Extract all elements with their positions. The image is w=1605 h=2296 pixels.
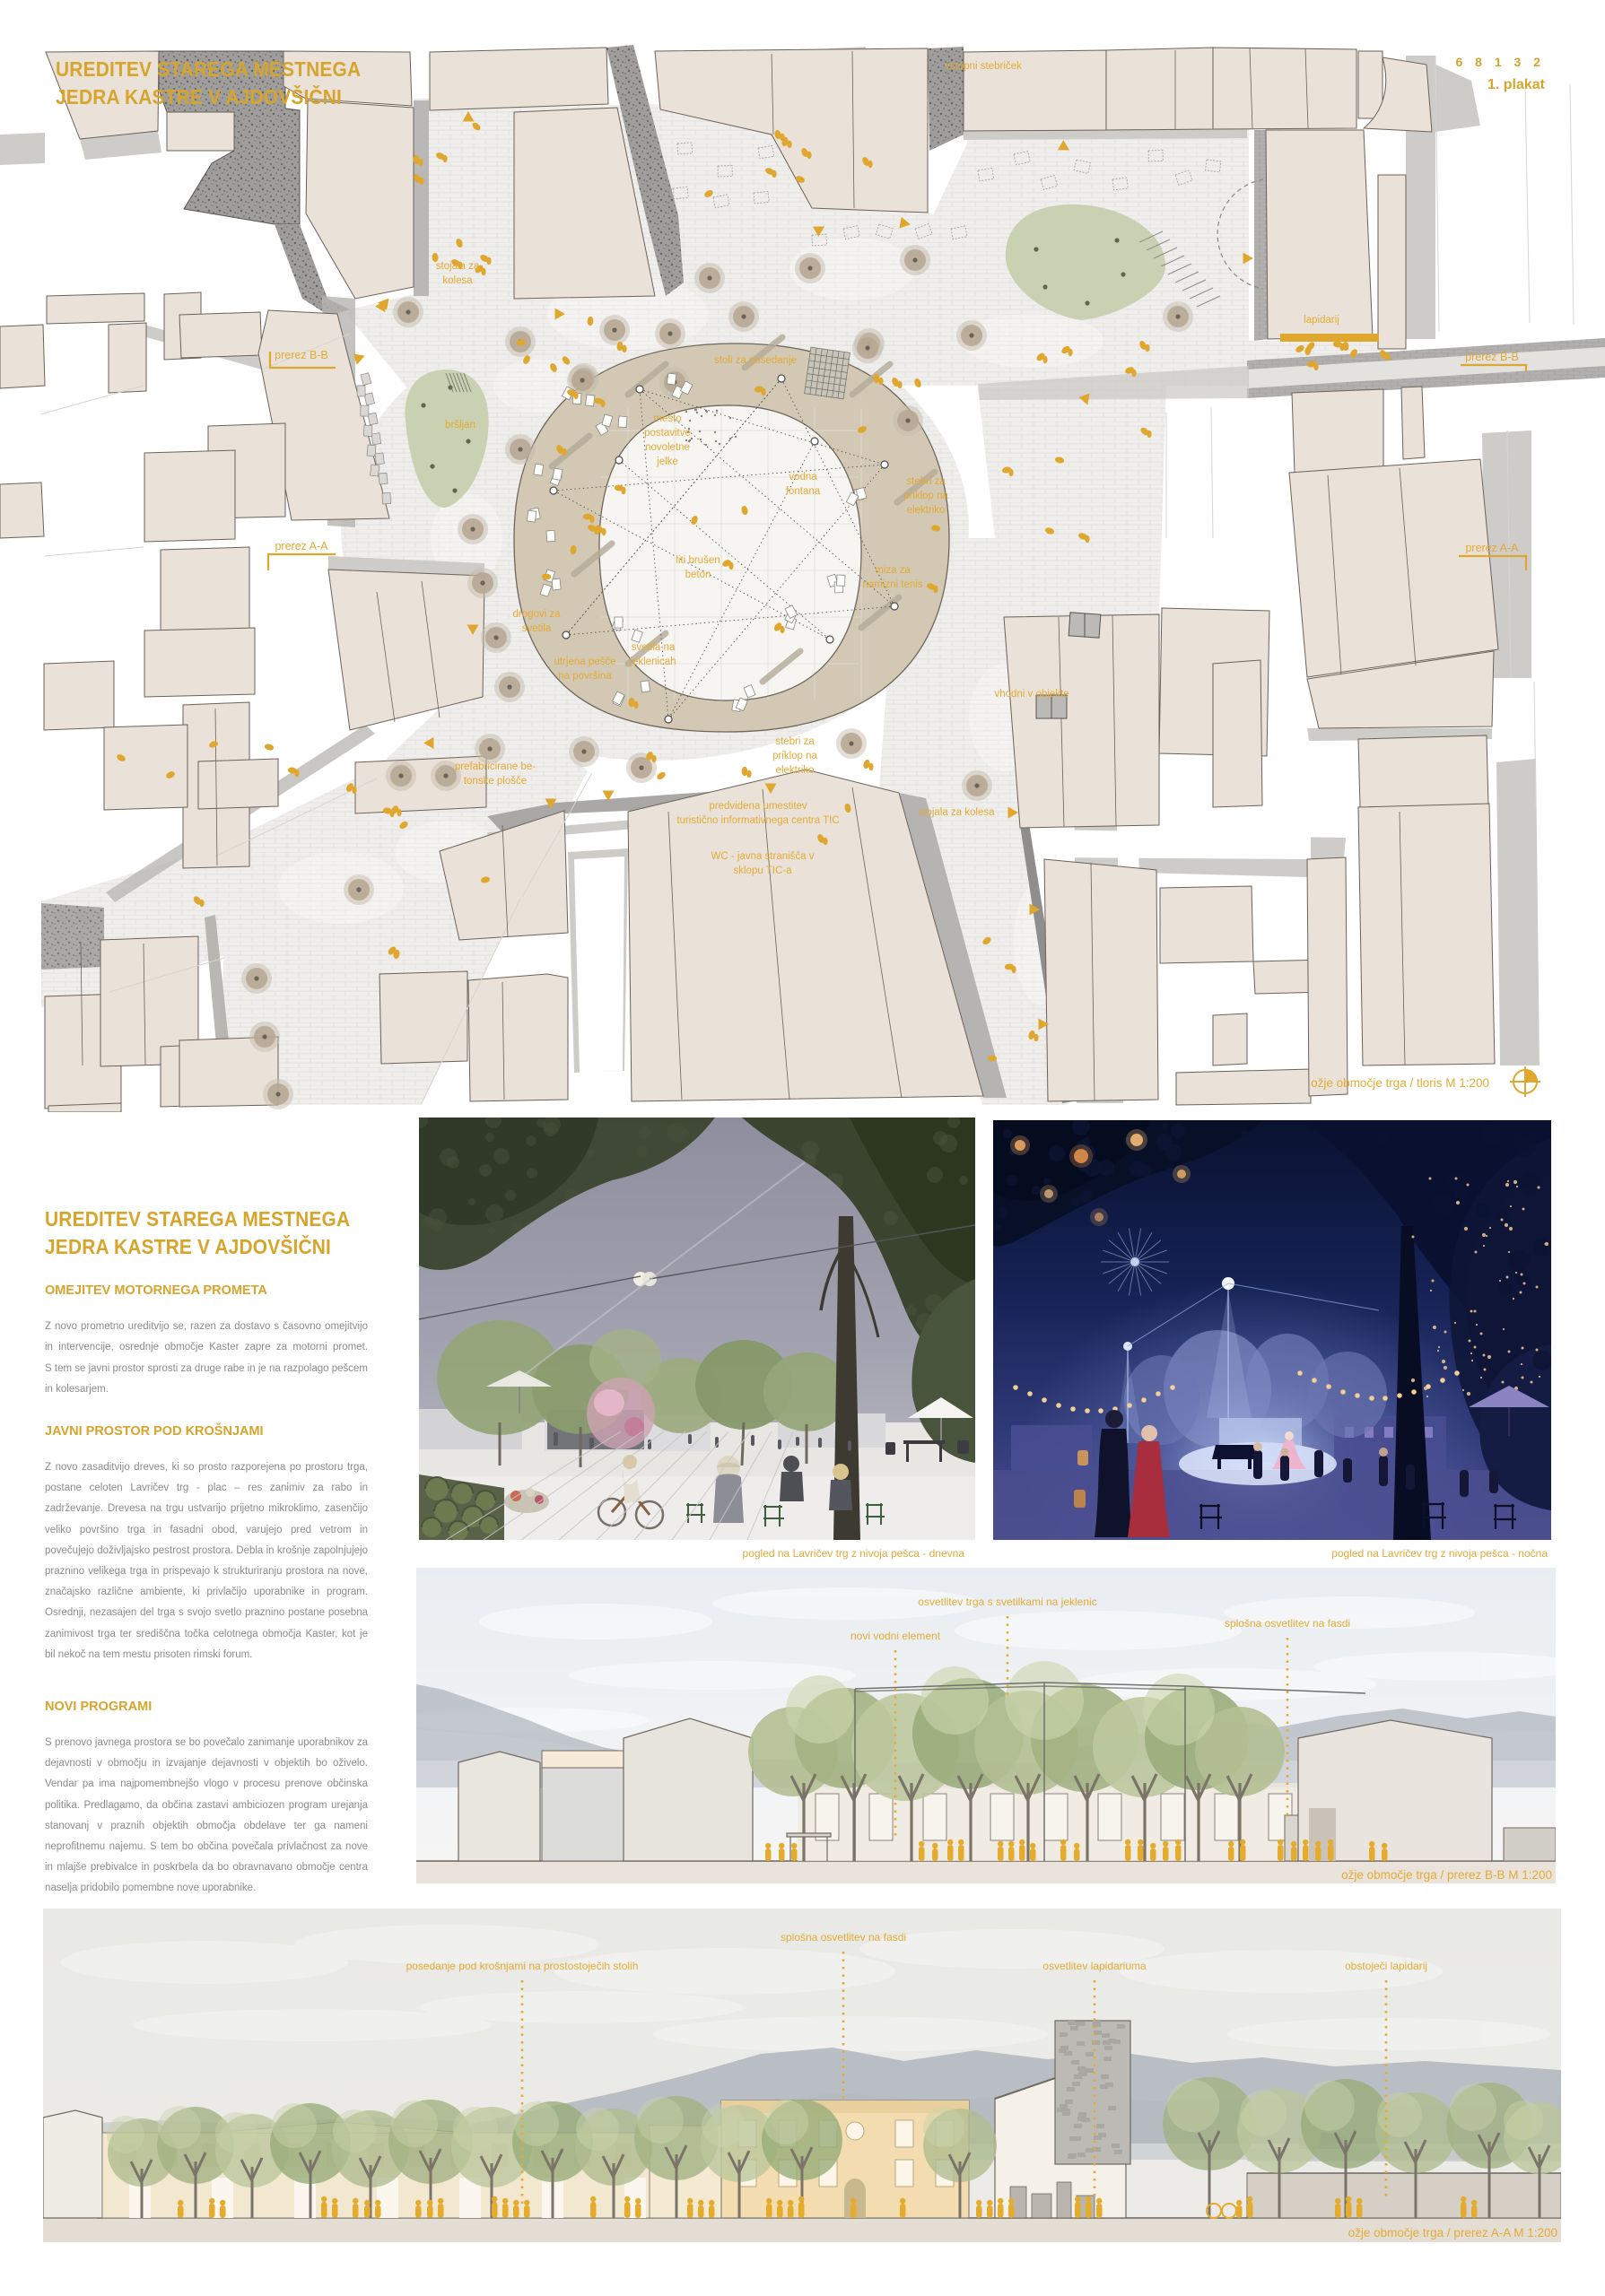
svg-text:jeklenicah: jeklenicah <box>629 657 676 667</box>
svg-text:kolesa: kolesa <box>442 275 473 286</box>
svg-text:elektriko: elektriko <box>776 765 815 776</box>
svg-text:prerez B-B: prerez B-B <box>1465 351 1519 363</box>
svg-text:stebri za: stebri za <box>775 736 815 747</box>
svg-text:obstoječi lapidarij: obstoječi lapidarij <box>1345 1960 1427 1972</box>
svg-text:novi vodni element: novi vodni element <box>850 1630 941 1642</box>
svg-text:drogovi za: drogovi za <box>512 609 561 620</box>
svg-text:splošna osvetlitev na fasdi: splošna osvetlitev na fasdi <box>781 1931 906 1944</box>
svg-text:prerez A-A: prerez A-A <box>1465 542 1519 554</box>
svg-text:sklopu TIC-a: sklopu TIC-a <box>734 865 793 876</box>
svg-text:WC - javna stranišča v: WC - javna stranišča v <box>711 851 814 862</box>
svg-text:vodna: vodna <box>789 472 817 483</box>
svg-text:miza za: miza za <box>875 565 911 576</box>
svg-text:bršljan: bršljan <box>445 420 475 430</box>
svg-text:osvetlitev trga s svetilkami n: osvetlitev trga s svetilkami na jeklenic <box>918 1596 1096 1608</box>
svg-text:priklop na: priklop na <box>772 751 817 761</box>
svg-text:vstopni stebriček: vstopni stebriček <box>945 61 1022 72</box>
svg-text:svetila na: svetila na <box>632 642 676 653</box>
svg-text:jelke: jelke <box>656 457 678 467</box>
svg-text:utrjena pešče: utrjena pešče <box>554 657 615 667</box>
svg-text:osvetlitev lapidariuma: osvetlitev lapidariuma <box>1042 1960 1147 1972</box>
svg-text:stoli za posedanje: stoli za posedanje <box>714 355 797 366</box>
svg-text:stojala za kolesa: stojala za kolesa <box>918 807 995 818</box>
svg-text:predvidena umestitev: predvidena umestitev <box>709 801 807 812</box>
svg-text:ožje območje trga / prerez A-: ožje območje trga / prerez A-A M 1:200 <box>1348 2226 1557 2239</box>
svg-text:stojala za: stojala za <box>436 261 480 272</box>
svg-text:elektriko: elektriko <box>907 505 946 516</box>
svg-text:prefabricirane be-: prefabricirane be- <box>455 761 536 772</box>
svg-text:priklop na: priklop na <box>903 491 948 501</box>
svg-text:ožje območje trga / prerez B-: ožje območje trga / prerez B-B M 1:200 <box>1341 1868 1552 1882</box>
svg-text:novoletne: novoletne <box>645 442 690 453</box>
svg-text:liti brušen: liti brušen <box>676 555 720 566</box>
svg-text:beton: beton <box>685 570 711 580</box>
svg-text:fontana: fontana <box>786 486 821 497</box>
svg-text:postavitve: postavitve <box>644 428 691 439</box>
svg-text:prerez A-A: prerez A-A <box>275 540 328 552</box>
svg-text:splošna osvetlitev na fasdi: splošna osvetlitev na fasdi <box>1225 1617 1350 1630</box>
svg-text:ožje območje trga / tloris M: ožje območje trga / tloris M 1:200 <box>1311 1076 1489 1090</box>
svg-text:turistično informativnega cent: turistično informativnega centra TIC <box>676 815 839 826</box>
svg-text:prerez B-B: prerez B-B <box>275 349 328 361</box>
svg-text:stebri za: stebri za <box>906 476 946 487</box>
svg-text:namizni tenis: namizni tenis <box>862 579 922 590</box>
svg-text:posedanje pod krošnjami na pro: posedanje pod krošnjami na prostostoječi… <box>406 1960 639 1972</box>
svg-text:tonske plošče: tonske plošče <box>464 776 527 787</box>
svg-text:lapidarij: lapidarij <box>1304 315 1339 326</box>
svg-text:mesto: mesto <box>653 413 681 424</box>
svg-text:na površina: na površina <box>558 671 612 682</box>
svg-text:vhodni v objekte: vhodni v objekte <box>994 689 1069 700</box>
svg-text:svetila: svetila <box>522 623 552 634</box>
